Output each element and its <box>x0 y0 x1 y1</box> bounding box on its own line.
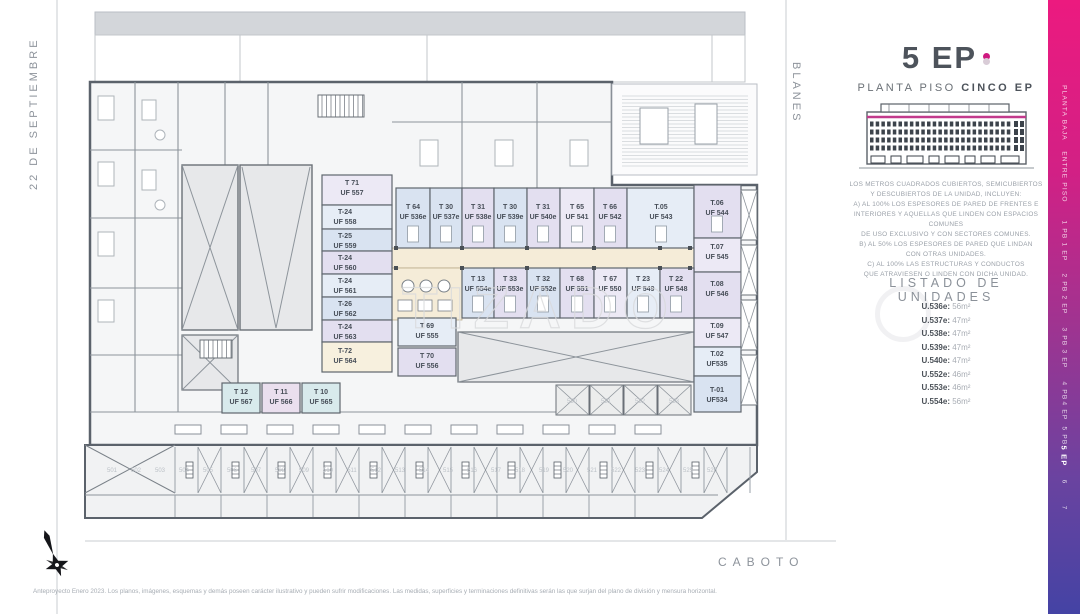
panel-subtitle: PLANTA PISO CINCO EP <box>845 82 1047 94</box>
storage-band <box>85 445 757 518</box>
compass-icon <box>33 526 72 580</box>
storage-number: 530 <box>567 399 578 405</box>
street-label-bottom: CABOTO <box>718 555 804 569</box>
floor-selector-item-1-pb[interactable]: 1 PB <box>1061 221 1068 240</box>
storage-number: 510 <box>323 468 334 474</box>
storage-number: 513 <box>395 468 406 474</box>
canopy-tab <box>635 425 661 434</box>
storage-cell: 532 <box>624 385 657 415</box>
storage-number: 531 <box>601 399 612 405</box>
unit-uf-label: UF 547 <box>706 333 729 340</box>
unit-type-label: T-26 <box>338 301 352 308</box>
unit-cell: T 30UF 537e <box>430 188 462 248</box>
building-elevation-illustration <box>859 98 1034 176</box>
unit-cell: T-26UF 562 <box>322 297 392 320</box>
storage-number: 519 <box>539 468 550 474</box>
floor-selector-item-5-ep[interactable]: 5 EP <box>1060 445 1069 466</box>
unit-uf-label: UF 562 <box>334 311 357 318</box>
canopy-tab <box>589 425 615 434</box>
unit-list-item: U.552e: 46m² <box>845 370 1047 384</box>
unit-type-label: T 10 <box>314 389 328 396</box>
floor-selector-item-entre-piso[interactable]: ENTRE PISO <box>1061 151 1068 202</box>
floor-selector-item-1-ep[interactable]: 1 EP <box>1061 243 1068 262</box>
unit-cell: T-24UF 560 <box>322 251 392 274</box>
unit-cell: T 31UF 540e <box>527 188 560 248</box>
storage-number: 523 <box>635 468 646 474</box>
unit-cell: T 66UF 542 <box>594 188 627 248</box>
unit-type-label: T.05 <box>654 204 667 211</box>
unit-type-label: T.07 <box>710 244 723 251</box>
storage-number: 525 <box>683 468 694 474</box>
unit-type-label: T 30 <box>439 204 453 211</box>
measurement-note: LOS METROS CUADRADOS CUBIERTOS, SEMICUBI… <box>845 180 1047 280</box>
note-line: B) AL 50% LOS ESPESORES DE PARED QUE LIN… <box>845 240 1047 250</box>
floor-selector-item-2-pb[interactable]: 2 PB <box>1061 274 1068 293</box>
unit-uf-label: UF 541 <box>566 214 589 221</box>
unit-type-label: T 71 <box>345 180 359 187</box>
storage-number: 514 <box>419 468 430 474</box>
unit-list-item: U.553e: 46m² <box>845 383 1047 397</box>
unit-list-item: U.538e: 47m² <box>845 329 1047 343</box>
storage-number: 507 <box>251 468 262 474</box>
unit-cell: T 12UF 567 <box>222 383 260 413</box>
unit-cell: T 30UF 539e <box>494 188 527 248</box>
unit-type-label: T-24 <box>338 278 352 285</box>
canopy-tab <box>221 425 247 434</box>
unit-cell: T-72UF 564 <box>322 342 392 372</box>
unit-type-label: T 66 <box>603 204 617 211</box>
storage-number: 520 <box>563 468 574 474</box>
unit-uf-label: UF 542 <box>599 214 622 221</box>
unit-cell: T 71UF 557 <box>322 175 392 205</box>
storage-number: 524 <box>659 468 670 474</box>
unit-list-title: LISTADO DE UNIDADES <box>845 276 1047 304</box>
unit-type-label: T-24 <box>338 255 352 262</box>
storage-cell: 531 <box>590 385 623 415</box>
watermark-text: TIZADO <box>402 276 678 341</box>
subtitle-regular: PLANTA PISO <box>858 82 962 94</box>
unit-cell: T.07UF 545 <box>694 238 741 272</box>
unit-uf-label: UF 537e <box>433 214 460 221</box>
unit-type-label: T 65 <box>570 204 584 211</box>
unit-type-label: T 11 <box>274 389 288 396</box>
disclaimer-text: Anteproyecto Enero 2023. Los planos, imá… <box>33 588 793 595</box>
storage-number: 516 <box>467 468 478 474</box>
unit-uf-label: UF 559 <box>334 243 357 250</box>
unit-type-label: T-25 <box>338 233 352 240</box>
unit-cell: T 11UF 566 <box>262 383 300 413</box>
canopy-tab <box>497 425 523 434</box>
unit-cell: T-01UF534 <box>694 376 741 412</box>
storage-number: 533 <box>669 399 680 405</box>
floor-selector-item-3-ep[interactable]: 3 EP <box>1061 350 1068 369</box>
unit-type-label: T-24 <box>338 324 352 331</box>
storage-number: 501 <box>107 468 118 474</box>
unit-type-label: T-72 <box>338 348 352 355</box>
unit-uf-label: UF 563 <box>334 334 357 341</box>
floor-selector-item-4-ep[interactable]: 4 EP <box>1061 402 1068 421</box>
street-label-right: BLANES <box>790 62 802 123</box>
storage-number: 518 <box>515 468 526 474</box>
panel-title-row: 5 EP <box>845 40 1047 76</box>
note-line: A) AL 100% LOS ESPESORES DE PARED DE FRE… <box>845 200 1047 210</box>
unit-type-label: T 31 <box>471 204 485 211</box>
unit-uf-label: UF 536e <box>400 214 427 221</box>
canopy-tab <box>543 425 569 434</box>
floor-selector-item-planta-baja[interactable]: PLANTA BAJA <box>1061 85 1068 141</box>
storage-number: 521 <box>587 468 598 474</box>
unit-type-label: T 12 <box>234 389 248 396</box>
page-title: 5 EP <box>902 40 977 76</box>
storage-number: 508 <box>275 468 286 474</box>
unit-list-item: U.536e: 56m² <box>845 302 1047 316</box>
storage-cell: 530 <box>556 385 589 415</box>
unit-uf-label: UF 546 <box>706 291 729 298</box>
note-line: DE USO EXCLUSIVO Y CON SECTORES COMUNES. <box>845 230 1047 240</box>
unit-uf-label: UF 540e <box>530 214 557 221</box>
storage-number: 532 <box>635 399 646 405</box>
note-line: INTERIORES Y AQUELLAS QUE LINDEN CON ESP… <box>845 210 1047 230</box>
storage-number: 517 <box>491 468 502 474</box>
unit-type-label: T.09 <box>710 323 723 330</box>
storage-number: 503 <box>155 468 166 474</box>
unit-uf-label: UF 538e <box>465 214 492 221</box>
unit-cell: T-24UF 563 <box>322 320 392 342</box>
unit-cell: T-24UF 561 <box>322 274 392 297</box>
unit-cell: T 31UF 538e <box>462 188 494 248</box>
unit-uf-label: UF 561 <box>334 288 357 295</box>
unit-uf-label: UF 557 <box>341 190 364 197</box>
unit-uf-label: UF 545 <box>706 254 729 261</box>
floor-selector-item-3-pb[interactable]: 3 PB <box>1061 328 1068 347</box>
unit-type-label: T 31 <box>536 204 550 211</box>
unit-cell: T 70UF 556 <box>398 348 456 376</box>
unit-uf-label: UF 564 <box>334 358 357 365</box>
storage-number: 512 <box>371 468 382 474</box>
unit-uf-label: UF 543 <box>650 214 673 221</box>
unit-cell: T 10UF 565 <box>302 383 340 413</box>
storage-number: 506 <box>227 468 238 474</box>
storage-number: 509 <box>299 468 310 474</box>
floor-selector-item-4-pb[interactable]: 4 PB <box>1061 382 1068 401</box>
unit-type-label: T.06 <box>710 200 723 207</box>
floor-selector-item-6[interactable]: 6 <box>1061 480 1068 485</box>
unit-list-item: U.554e: 56m² <box>845 397 1047 411</box>
floor-selector-item-7[interactable]: 7 <box>1061 506 1068 511</box>
unit-cell: T.08UF 546 <box>694 272 741 318</box>
unit-type-label: T.08 <box>710 281 723 288</box>
unit-uf-label: UF 558 <box>334 219 357 226</box>
floor-selector-item-2-ep[interactable]: 2 EP <box>1061 296 1068 315</box>
unit-list-item: U.539e: 47m² <box>845 343 1047 357</box>
unit-cell: T.06UF 544 <box>694 185 741 238</box>
unit-cell: T.02UF535 <box>694 347 741 376</box>
floor-selector: PLANTA BAJAENTRE PISO1 PB1 EP2 PB2 EP3 P… <box>1048 0 1080 614</box>
roof-deck <box>612 84 757 175</box>
unit-uf-label: UF 560 <box>334 265 357 272</box>
storage-number: 511 <box>347 468 357 474</box>
info-panel: 5 EP PLANTA PISO CINCO EP LOS METROS CUA… <box>845 0 1047 614</box>
storage-number: 502 <box>131 468 142 474</box>
storage-cell: 533 <box>658 385 691 415</box>
floor-selector-item-5-pb[interactable]: 5 PB <box>1061 427 1068 446</box>
unit-uf-label: UF534 <box>706 397 727 404</box>
unit-type-label: T-24 <box>338 209 352 216</box>
unit-uf-label: UF 567 <box>230 399 253 406</box>
note-line: C) AL 100% LAS ESTRUCTURAS Y CONDUCTOS <box>845 260 1047 270</box>
unit-type-label: T 64 <box>406 204 420 211</box>
terrace-strip <box>95 35 745 82</box>
storage-number: 515 <box>443 468 454 474</box>
note-line: Y DESCUBIERTOS DE LA UNIDAD, INCLUYEN: <box>845 190 1047 200</box>
canopy-tab <box>405 425 431 434</box>
unit-cell: T-25UF 559 <box>322 229 392 251</box>
unit-cell: T 65UF 541 <box>560 188 594 248</box>
unit-uf-label: UF535 <box>706 361 727 368</box>
street-label-left: 22 DE SEPTIEMBRE <box>28 60 40 190</box>
unit-cell: T 64UF 536e <box>396 188 430 248</box>
unit-list: U.536e: 56m²U.537e: 47m²U.538e: 47m²U.53… <box>845 302 1047 410</box>
unit-type-label: T 30 <box>503 204 517 211</box>
unit-type-label: T.02 <box>710 351 723 358</box>
canopy-tab <box>451 425 477 434</box>
unit-uf-label: UF 556 <box>416 363 439 370</box>
canopy-tab <box>267 425 293 434</box>
canopy-tab <box>313 425 339 434</box>
unit-uf-label: UF 544 <box>706 210 729 217</box>
roof-balcony-band <box>95 12 745 35</box>
storage-number: 505 <box>203 468 214 474</box>
unit-cell: T.09UF 547 <box>694 318 741 347</box>
note-line: LOS METROS CUADRADOS CUBIERTOS, SEMICUBI… <box>845 180 1047 190</box>
unit-uf-label: UF 539e <box>497 214 524 221</box>
unit-cell: T-24UF 558 <box>322 205 392 229</box>
unit-cell: T.05UF 543 <box>627 188 694 248</box>
accent-dot-icon <box>983 58 990 65</box>
note-line: CON OTRAS UNIDADES. <box>845 250 1047 260</box>
unit-type-label: T-01 <box>710 387 724 394</box>
unit-uf-label: UF 566 <box>270 399 293 406</box>
unit-uf-label: UF 565 <box>310 399 333 406</box>
subtitle-bold: CINCO EP <box>961 82 1034 94</box>
storage-number: 526 <box>707 468 718 474</box>
canopy-tab <box>175 425 201 434</box>
storage-number: 504 <box>179 468 190 474</box>
unit-list-item: U.540e: 47m² <box>845 356 1047 370</box>
storage-number: 522 <box>611 468 622 474</box>
canopy-tab <box>359 425 385 434</box>
unit-type-label: T 70 <box>420 353 434 360</box>
unit-list-item: U.537e: 47m² <box>845 316 1047 330</box>
